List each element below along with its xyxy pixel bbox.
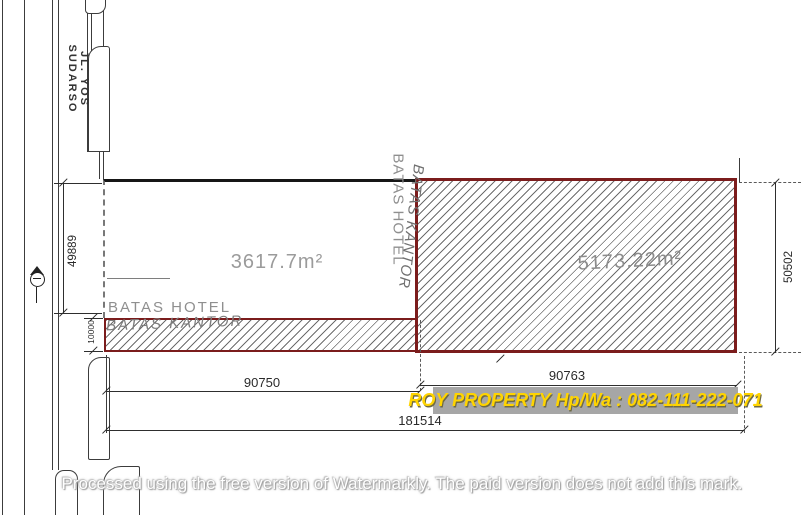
dimension-line-south-total — [106, 430, 744, 431]
boundary-mark-line — [107, 278, 170, 279]
survey-benchmark-icon — [27, 264, 47, 312]
dimension-extension — [420, 320, 421, 391]
dimension-south-left-label: 90750 — [212, 375, 312, 390]
dimension-line-south-right — [420, 385, 737, 386]
dimension-line-south-left — [106, 391, 420, 392]
dimension-line-west — [63, 183, 64, 313]
dimension-east-label: 50502 — [783, 237, 795, 297]
road-median-island — [88, 46, 110, 152]
area-label-hotel: 3617.7m² — [207, 251, 347, 274]
property-watermark-text: ROY PROPERTY Hp/Wa : 082-111-222-071 — [408, 390, 762, 411]
road-curb-line — [99, 150, 100, 179]
property-watermark-banner: ROY PROPERTY Hp/Wa : 082-111-222-071 — [433, 387, 738, 414]
dimension-strip-label: 10000 — [86, 312, 96, 352]
dimension-line-east — [775, 183, 776, 353]
dimension-extension — [739, 158, 740, 182]
dimension-west-label: 49889 — [67, 221, 79, 281]
dimension-extension — [106, 355, 107, 433]
dimension-south-total-label: 181514 — [370, 413, 470, 428]
dimension-extension — [739, 182, 801, 183]
road-edge-line — [2, 0, 3, 515]
road-name-label: JL. YOS SUDARSO — [66, 19, 90, 139]
parcel-hotel — [103, 179, 415, 318]
survey-tick — [496, 354, 505, 363]
road-lane-line — [58, 0, 59, 470]
road-lane-line — [52, 0, 53, 470]
dimension-extension — [739, 352, 801, 353]
watermarkly-notice: Processed using the free version of Wate… — [0, 474, 804, 494]
dimension-south-right-label: 90763 — [517, 368, 617, 383]
road-edge-line — [24, 0, 25, 515]
site-plan-drawing: JL. YOS SUDARSO 3617.7m² 5173.22m² BATAS… — [0, 0, 804, 515]
